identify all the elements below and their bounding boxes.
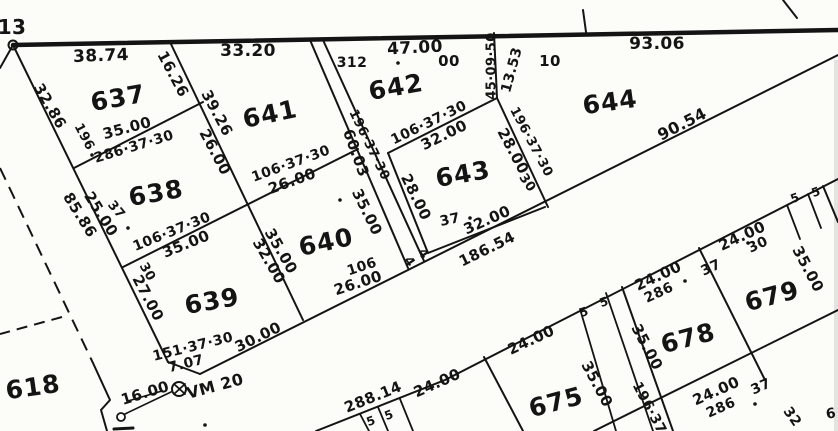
bottom-edge-stub — [114, 428, 133, 429]
measurement-label: 38.74 — [73, 45, 129, 67]
survey-dot — [753, 402, 757, 406]
measurement-label: 10 — [539, 52, 561, 70]
plat-canvas: 1338.7433.2047.0093.06312001016.2639.262… — [0, 0, 838, 431]
measurement-label: 47.00 — [387, 37, 444, 60]
measurement-label: 312 — [337, 55, 367, 71]
survey-dot — [338, 198, 342, 202]
measurement-label: 33.20 — [220, 41, 276, 61]
measurement-label: 13 — [0, 15, 26, 39]
cadastral-plat-map: 1338.7433.2047.0093.06312001016.2639.262… — [0, 0, 838, 431]
scan-edge-artifact — [834, 60, 838, 431]
measurement-label: 45·09·50 — [485, 32, 500, 99]
survey-dot — [203, 423, 207, 427]
survey-dot — [396, 61, 400, 65]
measurement-label: 00 — [438, 52, 460, 70]
survey-dot — [126, 226, 130, 230]
measurement-label: 93.06 — [629, 34, 685, 54]
survey-dot — [683, 279, 687, 283]
